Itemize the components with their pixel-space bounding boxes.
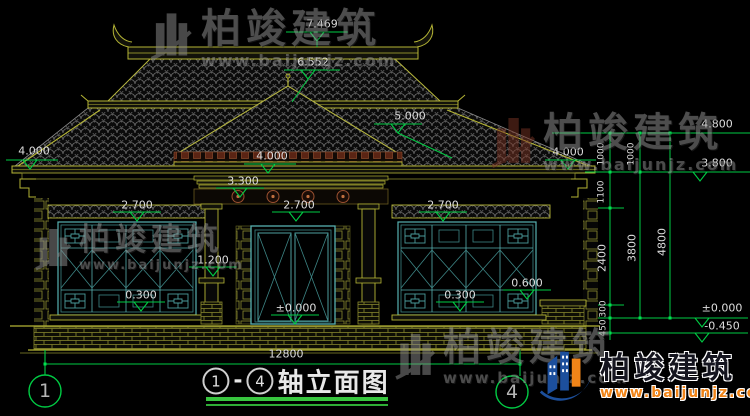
watermark-building-icon [148,8,194,62]
watermark-left: 柏竣建筑 www.baijunjz.com [34,224,244,273]
brand-logo-url: www.baijunjz.com [600,385,750,401]
drawing-title: 1 - 4 轴立面图 [202,363,389,400]
elevation-label-window-left: 2.700 [121,200,153,211]
elevation-label-eave-left: 4.000 [18,146,50,157]
title-axis-start: 1 [202,368,229,395]
elevation-label-right-neg: -0.450 [704,321,739,332]
elevation-label-sill-right: 0.300 [444,290,476,301]
watermark-building-icon [490,112,536,170]
elevation-label-right-zero: ±0.000 [702,303,743,314]
watermark-building-icon [34,224,72,272]
brand-logo-icon [534,342,596,410]
dim-label-2400: 2400 [597,244,608,272]
watermark-building-icon [394,328,436,382]
window-right [392,222,546,320]
watermark-url: www.baijunjz.com [543,155,738,174]
dim-label-total-width: 12800 [269,349,304,360]
title-underline [206,397,388,401]
watermark-name: 柏竣建筑 [543,112,738,154]
brand-logo: 柏竣建筑 www.baijunjz.com [534,342,750,410]
title-axis-end: 4 [247,368,274,395]
dim-label-300: 300 [600,300,609,317]
elevation-label-porch-slope: 5.000 [394,111,426,122]
elevation-label-window-right: 2.700 [427,200,459,211]
elevation-label-beam: 3.300 [227,176,259,187]
watermark-name: 柏竣建筑 [79,224,244,257]
watermark-name: 柏竣建筑 [201,8,396,50]
cad-elevation-canvas: 7.469 6.552 5.000 4.000 4.000 4.000 3.30… [0,0,750,416]
dim-label-4800: 4800 [657,228,668,256]
elevation-label-ledge-right: 0.600 [511,278,543,289]
title-text: 轴立面图 [278,363,390,400]
watermark-url: www.baijunjz.com [79,258,244,273]
dim-label-3800: 3800 [627,234,638,262]
title-dash: - [233,369,242,394]
elevation-label-sill-left: 0.300 [125,290,157,301]
watermark-top: 柏竣建筑 www.baijunjz.com [148,8,396,70]
title-underline2 [206,404,388,406]
watermark-right: 柏竣建筑 www.baijunjz.com [490,112,738,174]
brand-logo-name: 柏竣建筑 [600,352,750,385]
axis-bubble-1: 1 [39,380,51,402]
elevation-label-door-head: 2.700 [283,200,315,211]
watermark-url: www.baijunjz.com [201,51,396,70]
dim-label-1100: 1100 [598,181,607,204]
elevation-label-porch-eave: 4.000 [256,151,288,162]
elevation-label-ground: ±0.000 [276,303,317,314]
